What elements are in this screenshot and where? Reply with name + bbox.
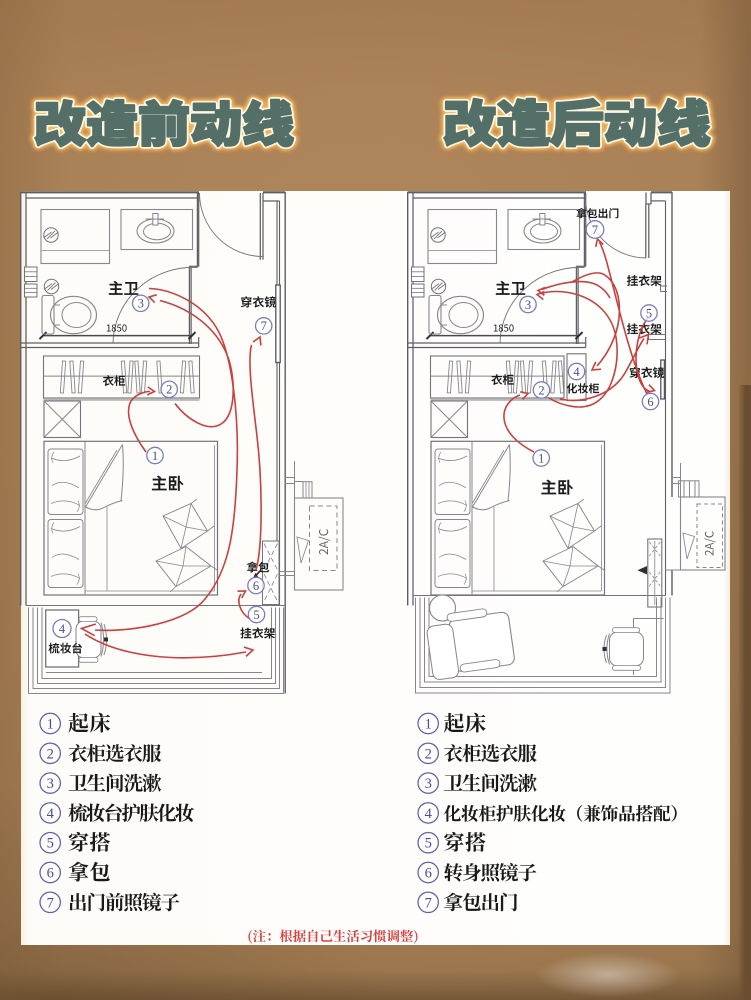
svg-text:1: 1 [538, 451, 544, 465]
svg-text:4: 4 [425, 806, 433, 822]
svg-text:1: 1 [152, 449, 158, 463]
svg-text:3: 3 [47, 776, 54, 792]
svg-text:5: 5 [47, 836, 54, 852]
svg-text:2: 2 [425, 746, 432, 762]
svg-text:7: 7 [425, 895, 432, 911]
svg-text:1: 1 [47, 717, 54, 733]
svg-text:7: 7 [261, 319, 267, 333]
svg-text:7: 7 [592, 223, 598, 237]
svg-text:2: 2 [47, 746, 54, 762]
svg-text:6: 6 [47, 866, 54, 882]
svg-text:3: 3 [525, 298, 531, 312]
svg-text:6: 6 [253, 579, 259, 593]
svg-text:2: 2 [166, 383, 172, 397]
svg-text:1: 1 [425, 717, 432, 733]
svg-text:4: 4 [47, 806, 55, 822]
svg-text:7: 7 [47, 895, 54, 911]
svg-text:4: 4 [59, 622, 66, 636]
svg-text:6: 6 [425, 866, 432, 882]
svg-text:2: 2 [538, 383, 544, 397]
svg-text:6: 6 [647, 395, 653, 409]
svg-text:5: 5 [253, 608, 259, 622]
svg-text:3: 3 [425, 776, 432, 792]
svg-text:3: 3 [138, 297, 144, 311]
svg-text:4: 4 [573, 365, 580, 379]
svg-text:5: 5 [425, 836, 432, 852]
svg-text:5: 5 [646, 306, 652, 320]
